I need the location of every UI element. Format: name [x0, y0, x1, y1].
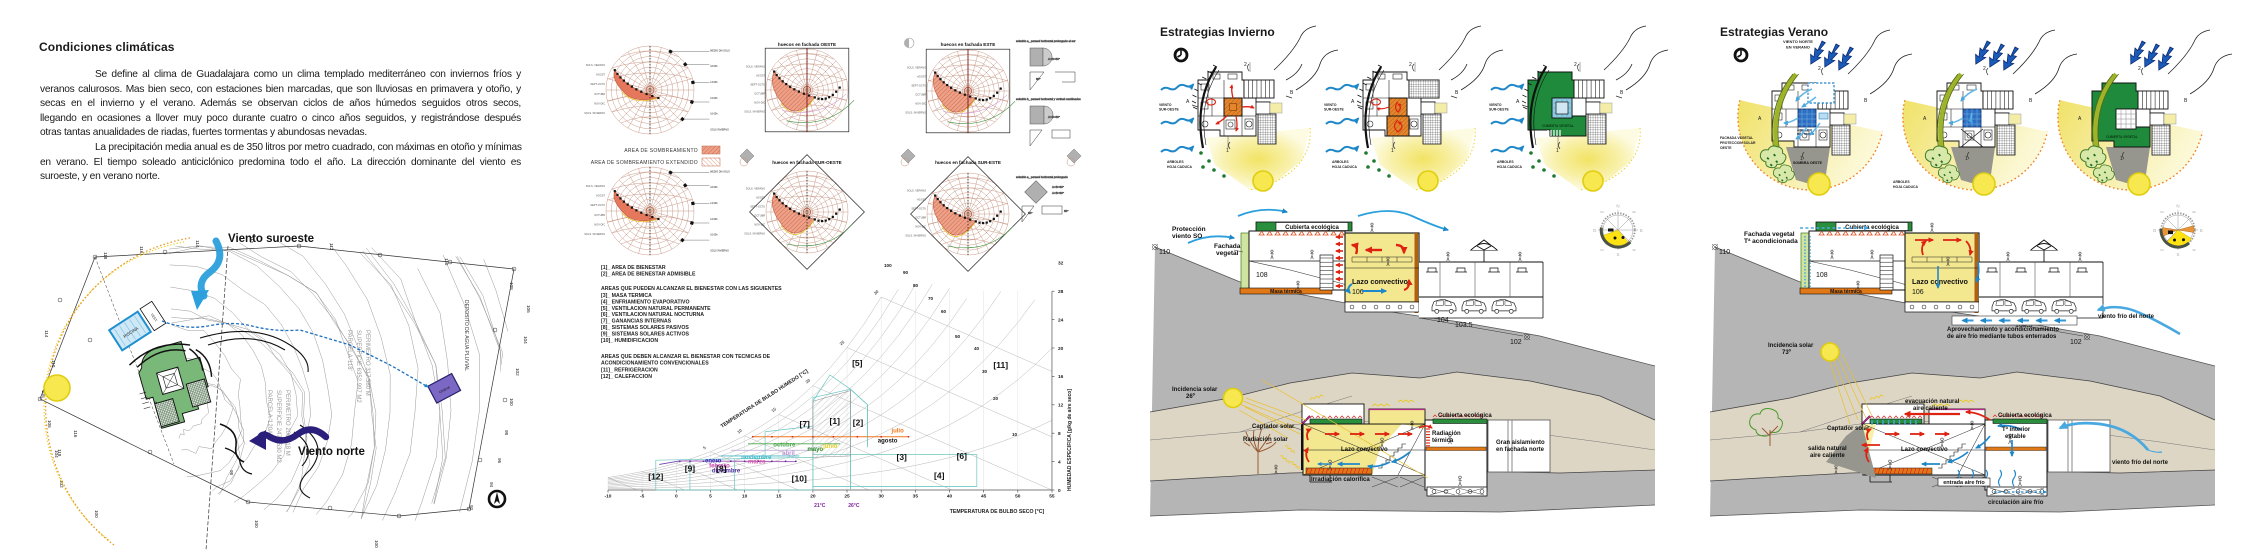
svg-text:salida natural: salida natural [1808, 446, 1847, 452]
svg-text:20: 20 [810, 494, 816, 500]
svg-text:15: 15 [770, 406, 777, 413]
svg-text:15: 15 [776, 494, 782, 500]
svg-text:A=B=60°: A=B=60° [1048, 115, 1061, 119]
svg-text:[8]_ SISTEMAS SOLARES PASIVOS: [8]_ SISTEMAS SOLARES PASIVOS [601, 325, 689, 331]
svg-text:AREA DE SOMBREAMIENTO EXTENDID: AREA DE SOMBREAMIENTO EXTENDIDO [591, 160, 698, 166]
svg-text:PARCELA '118': PARCELA '118' [346, 330, 352, 371]
svg-text:OCTUBR: OCTUBR [594, 92, 605, 96]
svg-text:aire caliente: aire caliente [1810, 453, 1845, 459]
svg-text:AGOST: AGOST [596, 193, 605, 197]
svg-text:SO: SO [2160, 248, 2164, 252]
svg-text:Masa térmica: Masa térmica [1830, 289, 1862, 295]
svg-text:FACHADA VEGETAL: FACHADA VEGETAL [1720, 136, 1753, 140]
svg-text:[9]_ SISTEMAS SOLARES ACTIVOS: [9]_ SISTEMAS SOLARES ACTIVOS [601, 331, 690, 337]
svg-text:entrada aire frío: entrada aire frío [1943, 480, 1985, 486]
svg-text:huecos en fachada SUR-ESTE: huecos en fachada SUR-ESTE [935, 160, 1001, 165]
svg-text:SEPT-OCTU: SEPT-OCTU [911, 206, 926, 210]
svg-text:NO: NO [1600, 210, 1604, 214]
svg-text:huecos en fachada ESTE: huecos en fachada ESTE [941, 42, 996, 47]
svg-text:Lazo convectivo: Lazo convectivo [1912, 277, 1969, 286]
svg-text:SEPT-OCTU: SEPT-OCTU [750, 204, 765, 208]
svg-text:térmica: térmica [1432, 438, 1454, 444]
svg-text:5: 5 [709, 494, 712, 500]
svg-text:en fachada norte: en fachada norte [1496, 447, 1545, 453]
svg-text:SOMBRA OESTE: SOMBRA OESTE [1793, 161, 1823, 165]
svg-text:NOV-DIC: NOV-DIC [594, 102, 605, 106]
svg-text:NE: NE [1632, 210, 1636, 214]
svg-text:SE: SE [2192, 248, 2196, 252]
svg-text:Irradiación calorífica: Irradiación calorífica [1311, 477, 1370, 483]
svg-text:VIENTO: VIENTO [1489, 103, 1502, 107]
svg-text:viento SO: viento SO [1172, 233, 1202, 240]
svg-text:[1]: [1] [830, 416, 841, 426]
svg-text:MEDIO DIA SOLS: MEDIO DIA SOLS [710, 170, 730, 173]
svg-text:100: 100 [374, 540, 379, 548]
svg-text:14:00h: 14:00h [710, 202, 718, 205]
svg-text:60°: 60° [1028, 211, 1033, 215]
svg-text:102: 102 [59, 480, 64, 488]
svg-text:vegetal: vegetal [1216, 250, 1239, 257]
svg-text:B: B [2184, 98, 2188, 104]
svg-text:110: 110 [1159, 249, 1170, 256]
svg-text:50: 50 [955, 334, 961, 339]
svg-text:[7]_ GANANCIAS INTERNAS: [7]_ GANANCIAS INTERNAS [601, 319, 672, 325]
svg-text:104: 104 [523, 336, 528, 344]
svg-text:SOLS. INVIERNO: SOLS. INVIERNO [905, 234, 926, 238]
svg-text:[11]: [11] [993, 360, 1008, 370]
svg-text:[4]: [4] [934, 471, 945, 481]
svg-text:60°: 60° [1064, 209, 1069, 213]
svg-text:1: 1 [1391, 148, 1394, 154]
svg-text:NOV-DIC: NOV-DIC [915, 102, 926, 106]
svg-text:35: 35 [913, 494, 919, 500]
svg-text:SUPERFICIE 6352.997 M2: SUPERFICIE 6352.997 M2 [355, 330, 361, 403]
svg-text:2: 2 [1409, 62, 1412, 68]
svg-text:A=B=60°: A=B=60° [1052, 191, 1065, 195]
svg-text:N: N [2176, 204, 2179, 209]
svg-text:106: 106 [47, 420, 52, 428]
svg-text:NO: NO [2160, 210, 2164, 214]
svg-text:SOLS. VERANO: SOLS. VERANO [586, 63, 605, 67]
svg-text:aire caliente: aire caliente [1913, 406, 1948, 412]
svg-text:10:00h: 10:00h [710, 234, 718, 237]
svg-text:14:00h: 14:00h [710, 81, 718, 84]
svg-text:OESTE: OESTE [1720, 146, 1732, 150]
svg-text:MEDIO DIA SOLS: MEDIO DIA SOLS [710, 49, 730, 52]
svg-text:HOJA CADUCA: HOJA CADUCA [1497, 165, 1522, 169]
svg-text:Tª interior: Tª interior [2002, 426, 2031, 433]
svg-text:julio: julio [890, 428, 904, 434]
svg-text:SOLS. VERANO: SOLS. VERANO [746, 64, 765, 68]
svg-text:B: B [1455, 90, 1459, 96]
svg-text:B: B [1290, 90, 1294, 96]
svg-text:EN VERANO: EN VERANO [1786, 45, 1810, 50]
svg-text:80: 80 [913, 283, 919, 288]
svg-text:A=B=60°: A=B=60° [1052, 185, 1065, 189]
svg-text:SOLS. VERANO: SOLS. VERANO [907, 188, 926, 192]
svg-text:SOLS. INVIERNO: SOLS. INVIERNO [744, 110, 765, 114]
svg-text:Incidencia solar: Incidencia solar [1172, 387, 1218, 393]
svg-text:SOLS. VERANO: SOLS. VERANO [907, 65, 926, 69]
svg-text:Captador solar: Captador solar [1827, 426, 1870, 432]
svg-text:4: 4 [1058, 459, 1061, 465]
svg-text:114: 114 [195, 240, 200, 248]
svg-text:Fachada vegetal: Fachada vegetal [1744, 231, 1795, 238]
svg-text:PERIMETRO 206.718 M: PERIMETRO 206.718 M [284, 390, 290, 456]
svg-text:S: S [1616, 252, 1619, 257]
svg-text:50: 50 [1015, 494, 1021, 500]
svg-text:SUPERFICIE 2475.530 M2: SUPERFICIE 2475.530 M2 [275, 390, 281, 463]
svg-text:118: 118 [103, 252, 108, 260]
svg-text:A=B=60°: A=B=60° [1048, 57, 1061, 61]
svg-text:28: 28 [1058, 289, 1064, 295]
svg-text:40: 40 [974, 346, 980, 351]
svg-text:[2]_ AREA DE BIENESTAR ADMISIB: [2]_ AREA DE BIENESTAR ADMISIBLE [601, 271, 696, 277]
svg-text:VIENTO NORTE: VIENTO NORTE [1783, 39, 1813, 44]
svg-text:viento frío del norte: viento frío del norte [2112, 460, 2169, 466]
svg-text:1: 1 [1226, 148, 1229, 154]
svg-text:110: 110 [1719, 249, 1730, 256]
svg-text:5: 5 [702, 445, 707, 451]
svg-text:S: S [2176, 252, 2179, 257]
svg-text:2: 2 [1983, 66, 1986, 72]
svg-text:[1]_ AREA DE BIENESTAR: [1]_ AREA DE BIENESTAR [601, 265, 666, 271]
svg-text:Viento suroeste: Viento suroeste [228, 233, 314, 245]
svg-text:AREAS QUE PUEDEN ALCANZAR EL B: AREAS QUE PUEDEN ALCANZAR EL BIENESTAR C… [601, 286, 782, 292]
svg-text:[2]: [2] [853, 417, 864, 427]
svg-text:30: 30 [982, 369, 988, 374]
svg-text:abril: abril [782, 451, 795, 457]
svg-text:[6]_ VENTILACION NATURAL NOCTU: [6]_ VENTILACION NATURAL NOCTURNA [601, 312, 704, 318]
svg-text:circulación aire frío: circulación aire frío [1988, 500, 2044, 506]
svg-text:Cubierta ecológica: Cubierta ecológica [1285, 225, 1339, 231]
svg-text:114: 114 [44, 330, 49, 338]
svg-text:N: N [1616, 204, 1619, 209]
svg-text:SUR-OESTE: SUR-OESTE [1489, 108, 1510, 112]
svg-text:[9]: [9] [685, 464, 696, 474]
svg-text:[3]: [3] [896, 452, 907, 462]
svg-text:Cubierta ecológica: Cubierta ecológica [1438, 413, 1492, 419]
svg-text:NE: NE [2192, 210, 2196, 214]
svg-text:SOLS. INVIERNO: SOLS. INVIERNO [905, 111, 926, 115]
svg-text:25: 25 [839, 339, 846, 346]
svg-text:10: 10 [1012, 432, 1018, 437]
svg-text:de aire frío mediante tubos en: de aire frío mediante tubos enterrados [1947, 334, 2057, 340]
svg-text:-10: -10 [605, 494, 612, 500]
svg-text:10: 10 [736, 427, 743, 434]
svg-text:TEMPERATURA DE BULBO SECO [°C: TEMPERATURA DE BULBO SECO [°C] [950, 509, 1045, 515]
svg-text:SO: SO [1600, 248, 1604, 252]
svg-text:VIENTO: VIENTO [1324, 103, 1337, 107]
svg-text:estable: estable [2005, 434, 2026, 440]
svg-text:10: 10 [742, 494, 748, 500]
svg-text:2: 2 [1574, 62, 1577, 68]
svg-text:24: 24 [1058, 317, 1064, 323]
svg-text:OCTUBR: OCTUBR [915, 216, 926, 220]
svg-text:102: 102 [1510, 339, 1522, 346]
svg-text:30: 30 [873, 289, 880, 296]
svg-text:TEMPERATURA DE BULBO HUMEDO [: TEMPERATURA DE BULBO HUMEDO [°C] [720, 368, 810, 429]
svg-text:[12]_ CALEFACCION: [12]_ CALEFACCION [601, 374, 652, 380]
svg-text:Gran aislamiento: Gran aislamiento [1496, 440, 1545, 446]
svg-text:94: 94 [489, 482, 494, 488]
svg-text:16: 16 [1058, 374, 1064, 380]
svg-text:Protección: Protección [1172, 226, 1206, 233]
svg-text:106: 106 [1912, 289, 1924, 296]
svg-text:OCTUBR: OCTUBR [754, 214, 765, 218]
svg-text:VIENTO: VIENTO [1159, 103, 1172, 107]
svg-text:[7]: [7] [800, 419, 811, 429]
svg-text:PERIMETRO 317.580 M: PERIMETRO 317.580 M [364, 330, 370, 396]
svg-text:-5: -5 [640, 494, 645, 500]
svg-text:116: 116 [73, 430, 78, 438]
svg-text:ACONDICIONAMIENTO CONVENCIONAL: ACONDICIONAMIENTO CONVENCIONALES [601, 360, 709, 366]
svg-text:SOLS. INVIERNO: SOLS. INVIERNO [584, 111, 605, 115]
svg-text:octubre: octubre [773, 443, 796, 449]
svg-text:solución a_ parasol horizontal: solución a_ parasol horizontal prolongad… [1016, 39, 1075, 43]
svg-text:SOLS INVIERNO: SOLS INVIERNO [710, 128, 729, 131]
svg-text:SEPT-OCTU: SEPT-OCTU [590, 203, 605, 207]
svg-text:16:00h: 16:00h [710, 65, 718, 68]
svg-text:evacuación natural: evacuación natural [1905, 399, 1960, 405]
svg-text:AREAS QUE DEBEN ALCANZAR EL BI: AREAS QUE DEBEN ALCANZAR EL BIENESTAR CO… [601, 354, 771, 360]
svg-text:Radiación: Radiación [1432, 431, 1461, 437]
svg-text:CUBIERTA VEGETAL: CUBIERTA VEGETAL [1542, 124, 1574, 128]
svg-text:CUBIERTA VEGETAL: CUBIERTA VEGETAL [2106, 135, 2138, 139]
svg-text:108: 108 [509, 282, 514, 290]
svg-text:SUR-OESTE: SUR-OESTE [1324, 108, 1345, 112]
svg-text:Fachada: Fachada [1214, 243, 1241, 250]
svg-text:HOJA CADUCA: HOJA CADUCA [1893, 185, 1918, 189]
svg-text:Radiación solar: Radiación solar [1243, 437, 1288, 443]
svg-text:Cubierta ecológica: Cubierta ecológica [1998, 413, 2052, 419]
svg-text:viento frío del norte: viento frío del norte [2098, 314, 2155, 320]
svg-text:AREA DE SOMBREAMIENTO: AREA DE SOMBREAMIENTO [624, 148, 698, 154]
svg-text:agosto: agosto [878, 438, 898, 444]
svg-text:A: A [1516, 99, 1520, 105]
svg-text:102: 102 [515, 368, 520, 376]
svg-text:12:00h: 12:00h [710, 218, 718, 221]
svg-text:70: 70 [928, 296, 934, 301]
svg-text:[6]: [6] [957, 451, 968, 461]
svg-text:110: 110 [444, 258, 449, 266]
svg-text:10:00h: 10:00h [710, 113, 718, 116]
svg-text:AGOST: AGOST [917, 74, 926, 78]
svg-text:Captador solar: Captador solar [1252, 424, 1295, 430]
svg-text:E: E [1640, 228, 1643, 233]
svg-text:1: 1 [1556, 148, 1559, 154]
svg-text:DEPOSITO DE AGUA PLUVIAL: DEPOSITO DE AGUA PLUVIAL [463, 300, 469, 371]
svg-text:16:00h: 16:00h [710, 186, 718, 189]
svg-text:ARBOLES: ARBOLES [1497, 160, 1514, 164]
svg-text:HOJA CADUCA: HOJA CADUCA [1332, 165, 1357, 169]
svg-text:SE: SE [1632, 248, 1636, 252]
svg-text:98: 98 [229, 470, 234, 476]
svg-text:E: E [2200, 228, 2203, 233]
svg-text:73º: 73º [1782, 350, 1792, 356]
svg-text:SOLS INVIERNO: SOLS INVIERNO [710, 249, 729, 252]
svg-text:huecos en fachada OESTE: huecos en fachada OESTE [778, 42, 836, 47]
svg-text:SOLS. VERANO: SOLS. VERANO [586, 184, 605, 188]
svg-text:Lazo convectivo: Lazo convectivo [1352, 277, 1409, 286]
svg-text:Viento norte: Viento norte [298, 446, 365, 458]
svg-text:102: 102 [2070, 339, 2082, 346]
svg-text:huecos en fachada SUR-OESTE: huecos en fachada SUR-OESTE [772, 160, 841, 165]
svg-text:HOJA CADUCA: HOJA CADUCA [1167, 165, 1192, 169]
svg-text:B: B [1864, 98, 1868, 104]
svg-text:ARBOLES: ARBOLES [1332, 160, 1349, 164]
svg-text:OCTUBR: OCTUBR [754, 92, 765, 96]
svg-text:ARBOLES: ARBOLES [1893, 180, 1910, 184]
svg-text:SEPT-OCTU: SEPT-OCTU [750, 82, 765, 86]
svg-text:[12]: [12] [648, 471, 663, 481]
svg-text:SOLS. VERANO: SOLS. VERANO [746, 186, 765, 190]
svg-text:112: 112 [329, 243, 334, 251]
svg-text:100: 100 [254, 520, 259, 528]
svg-text:SEPT-OCTU: SEPT-OCTU [911, 83, 926, 87]
svg-text:Aprovechamiento y acondicionam: Aprovechamiento y acondicionamiento [1947, 327, 2059, 333]
svg-text:B: B [2029, 98, 2033, 104]
svg-text:SOLS. INVIERNO: SOLS. INVIERNO [744, 232, 765, 236]
svg-text:Tª acondicionada: Tª acondicionada [1744, 238, 1798, 245]
svg-text:8: 8 [1058, 431, 1061, 437]
svg-text:26º: 26º [1186, 394, 1196, 400]
svg-text:20: 20 [993, 396, 999, 401]
svg-text:26°C: 26°C [848, 503, 860, 509]
svg-text:60°: 60° [1036, 77, 1041, 81]
svg-text:32: 32 [1058, 261, 1064, 267]
svg-text:marzo: marzo [748, 460, 766, 466]
svg-text:60: 60 [941, 309, 947, 314]
svg-text:110: 110 [51, 360, 56, 368]
svg-text:SOLS. INVIERNO: SOLS. INVIERNO [584, 232, 605, 236]
svg-text:[8]: [8] [716, 464, 727, 474]
svg-text:12:00h: 12:00h [710, 97, 718, 100]
svg-text:[5]_ VENTILACION NATURAL PERMA: [5]_ VENTILACION NATURAL PERMANENTE [601, 306, 711, 312]
svg-text:PARCELA '120A': PARCELA '120A' [266, 390, 272, 435]
svg-text:solución b_ parasol horizontal: solución b_ parasol horizontal y vertica… [1016, 97, 1081, 101]
svg-text:98: 98 [504, 430, 509, 436]
svg-text:SEPT-OCTU: SEPT-OCTU [590, 82, 605, 86]
svg-text:OCTUBR: OCTUBR [594, 213, 605, 217]
svg-text:108: 108 [1256, 272, 1268, 279]
svg-text:20: 20 [804, 377, 811, 384]
svg-text:Cubierta ecológica: Cubierta ecológica [1845, 225, 1899, 231]
svg-text:HUMEDAD ESPECIFICA [g/kg de a: HUMEDAD ESPECIFICA [g/kg de aire seco] [1067, 389, 1073, 491]
svg-text:O: O [1593, 228, 1597, 233]
svg-text:55: 55 [1049, 494, 1055, 500]
svg-text:90: 90 [903, 270, 909, 275]
svg-text:100: 100 [509, 398, 514, 406]
svg-text:[4]_ ENFRIAMIENTO EVAPORATIVO: [4]_ ENFRIAMIENTO EVAPORATIVO [601, 299, 689, 305]
svg-text:NOV-DIC: NOV-DIC [594, 223, 605, 227]
svg-text:21°C: 21°C [814, 503, 826, 509]
svg-text:B: B [1620, 90, 1624, 96]
svg-text:junio: junio [822, 444, 838, 450]
svg-text:Incidencia solar: Incidencia solar [1768, 343, 1814, 349]
svg-text:92: 92 [469, 505, 474, 511]
svg-text:[10]: [10] [792, 473, 807, 483]
svg-text:mayo: mayo [807, 447, 823, 453]
svg-text:[3]_ MASA TERMICA: [3]_ MASA TERMICA [601, 293, 652, 299]
svg-text:100: 100 [94, 510, 99, 518]
svg-text:solución a_ parasol horizontal: solución a_ parasol horizontal prolongad… [1016, 175, 1068, 179]
svg-text:Lazo convectivo: Lazo convectivo [1901, 447, 1948, 453]
svg-text:[11]_ REFRIGERACION: [11]_ REFRIGERACION [601, 368, 658, 374]
svg-text:96: 96 [497, 458, 502, 464]
svg-text:2: 2 [2138, 66, 2141, 72]
svg-text:30: 30 [879, 494, 885, 500]
svg-text:40: 40 [947, 494, 953, 500]
svg-text:0: 0 [675, 494, 678, 500]
svg-text:100: 100 [884, 263, 892, 268]
svg-text:104: 104 [54, 450, 59, 458]
svg-text:2: 2 [1818, 66, 1821, 72]
svg-text:SUR-OESTE: SUR-OESTE [1159, 108, 1180, 112]
svg-text:ARBOLES: ARBOLES [1167, 160, 1184, 164]
svg-text:AGOST: AGOST [596, 72, 605, 76]
svg-text:Masa térmica: Masa térmica [1270, 289, 1302, 295]
svg-text:0: 0 [1058, 488, 1061, 494]
svg-text:A: A [1186, 99, 1190, 105]
svg-text:25: 25 [844, 494, 850, 500]
svg-text:AGOST: AGOST [756, 73, 765, 77]
svg-text:20: 20 [1058, 346, 1064, 352]
svg-text:OCTUBR: OCTUBR [915, 93, 926, 97]
svg-text:45: 45 [981, 494, 987, 500]
svg-text:[10]_ HUMIDIFICACION: [10]_ HUMIDIFICACION [601, 338, 658, 344]
svg-text:12: 12 [1058, 403, 1064, 409]
svg-text:106: 106 [526, 305, 531, 313]
svg-text:2: 2 [1244, 62, 1247, 68]
svg-text:Lazo convectivo: Lazo convectivo [1341, 447, 1388, 453]
svg-text:[5]: [5] [852, 358, 863, 368]
svg-text:108: 108 [1816, 272, 1828, 279]
svg-text:A: A [1351, 99, 1355, 105]
svg-text:NOV-DIC: NOV-DIC [754, 101, 765, 105]
svg-text:PROTECCION SOLAR: PROTECCION SOLAR [1720, 141, 1756, 145]
svg-text:O: O [2153, 228, 2157, 233]
